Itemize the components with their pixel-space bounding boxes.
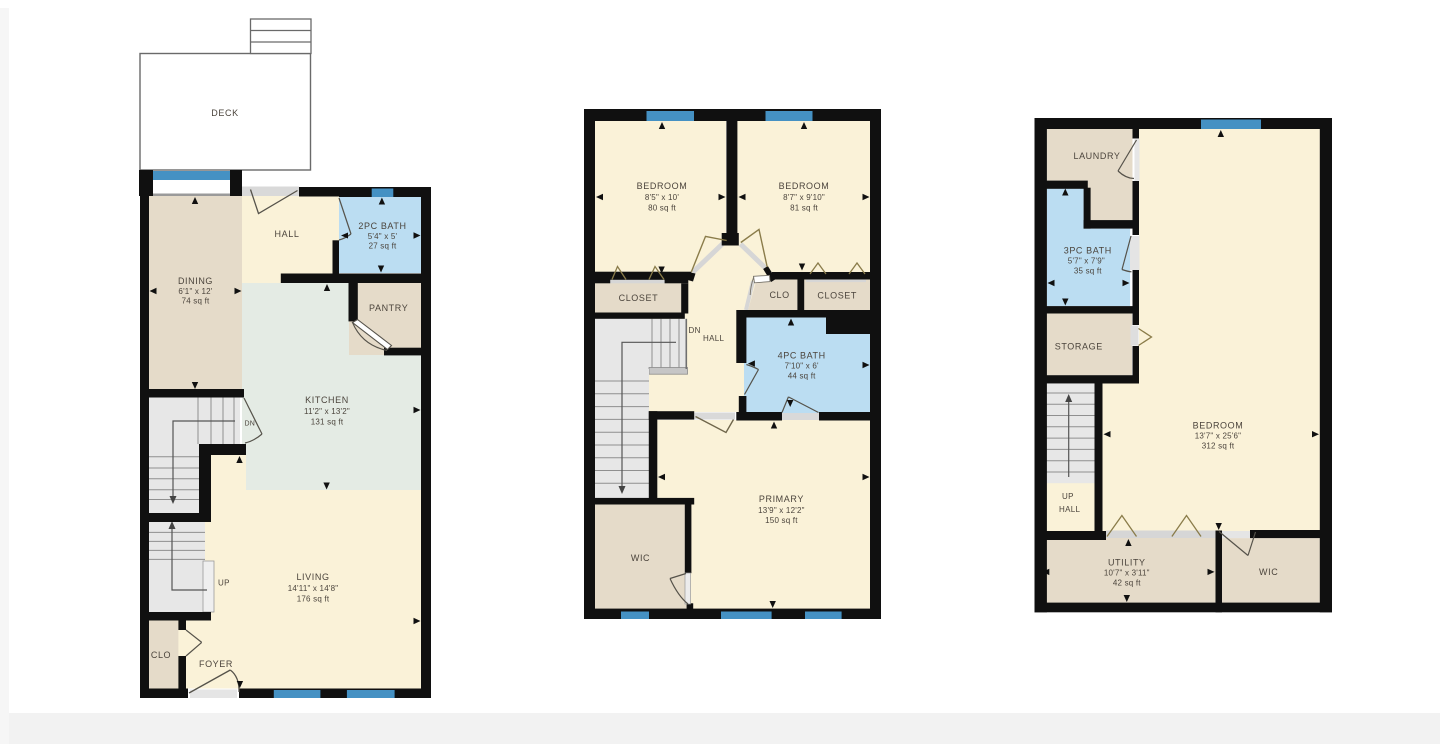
svg-text:8'5" x 10': 8'5" x 10' <box>645 193 679 202</box>
svg-text:DN: DN <box>245 421 256 428</box>
svg-text:11'2" x 13'2": 11'2" x 13'2" <box>304 407 350 416</box>
svg-text:STORAGE: STORAGE <box>1055 342 1103 352</box>
svg-text:44 sq ft: 44 sq ft <box>788 372 816 381</box>
svg-text:BEDROOM: BEDROOM <box>779 181 830 191</box>
svg-text:WIC: WIC <box>1259 567 1278 577</box>
svg-text:5'4" x 5': 5'4" x 5' <box>368 232 398 241</box>
svg-text:42 sq ft: 42 sq ft <box>1113 579 1141 588</box>
svg-text:LAUNDRY: LAUNDRY <box>1073 151 1120 161</box>
svg-text:UP: UP <box>1062 492 1074 501</box>
svg-text:13'9" x 12'2": 13'9" x 12'2" <box>758 506 804 515</box>
svg-text:13'7" x 25'6": 13'7" x 25'6" <box>1195 432 1241 441</box>
svg-text:LIVING: LIVING <box>296 572 329 582</box>
svg-text:81 sq ft: 81 sq ft <box>790 204 818 213</box>
svg-text:2PC BATH: 2PC BATH <box>358 221 406 231</box>
svg-text:WIC: WIC <box>631 553 650 563</box>
svg-text:DN: DN <box>689 326 701 335</box>
svg-text:312 sq ft: 312 sq ft <box>1202 442 1235 451</box>
svg-text:PRIMARY: PRIMARY <box>759 494 804 504</box>
svg-text:UTILITY: UTILITY <box>1108 558 1146 568</box>
svg-text:CLOSET: CLOSET <box>619 293 659 303</box>
svg-text:6'1" x 12': 6'1" x 12' <box>178 287 212 296</box>
svg-text:CLOSET: CLOSET <box>817 291 857 301</box>
svg-text:10'7" x 3'11": 10'7" x 3'11" <box>1104 569 1150 578</box>
svg-text:HALL: HALL <box>275 229 300 239</box>
svg-text:3PC BATH: 3PC BATH <box>1064 246 1112 256</box>
svg-text:8'7" x 9'10": 8'7" x 9'10" <box>783 193 825 202</box>
svg-text:4PC BATH: 4PC BATH <box>778 351 826 361</box>
svg-text:HALL: HALL <box>1059 505 1080 514</box>
svg-text:5'7" x 7'9": 5'7" x 7'9" <box>1068 257 1105 266</box>
svg-text:7'10" x 6': 7'10" x 6' <box>785 362 819 371</box>
svg-text:KITCHEN: KITCHEN <box>305 395 349 405</box>
svg-text:BEDROOM: BEDROOM <box>1193 421 1244 431</box>
svg-text:80 sq ft: 80 sq ft <box>648 204 676 213</box>
svg-text:PANTRY: PANTRY <box>369 303 408 313</box>
svg-text:CLO: CLO <box>151 650 171 660</box>
svg-text:DINING: DINING <box>178 276 213 286</box>
svg-text:150 sq ft: 150 sq ft <box>765 516 798 525</box>
svg-text:UP: UP <box>218 579 230 588</box>
svg-text:131 sq ft: 131 sq ft <box>311 418 344 427</box>
svg-text:CLO: CLO <box>769 290 789 300</box>
svg-text:FOYER: FOYER <box>199 659 233 669</box>
svg-text:35 sq ft: 35 sq ft <box>1074 267 1102 276</box>
svg-text:74 sq ft: 74 sq ft <box>182 297 210 306</box>
svg-text:BEDROOM: BEDROOM <box>637 181 688 191</box>
svg-text:HALL: HALL <box>703 334 724 343</box>
svg-text:176 sq ft: 176 sq ft <box>297 595 330 604</box>
svg-text:DECK: DECK <box>211 108 238 118</box>
svg-text:14'11" x 14'8": 14'11" x 14'8" <box>288 584 339 593</box>
svg-text:27 sq ft: 27 sq ft <box>369 242 397 251</box>
